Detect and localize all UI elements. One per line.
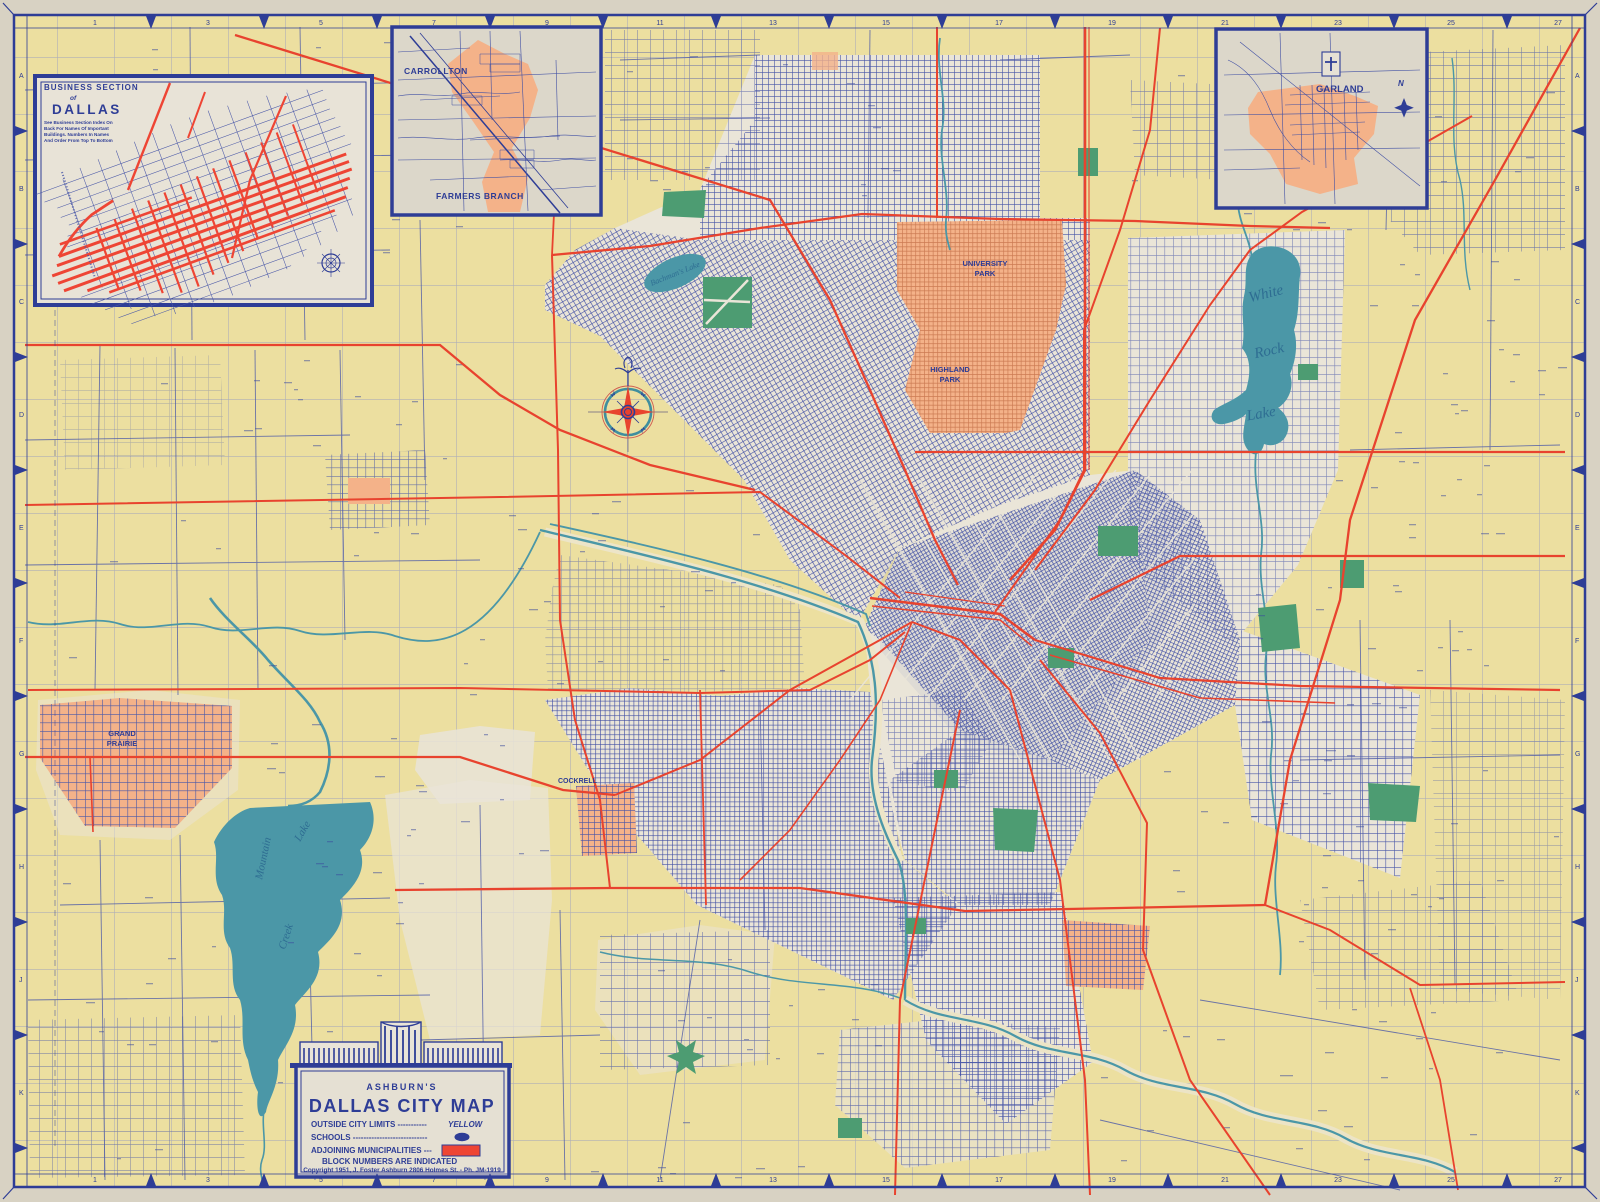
svg-text:23: 23	[1334, 20, 1342, 27]
svg-text:J: J	[1575, 977, 1579, 984]
svg-text:Back For Names Of Important: Back For Names Of Important	[44, 126, 109, 131]
svg-text:19: 19	[1108, 1177, 1116, 1184]
svg-text:BUSINESS SECTION: BUSINESS SECTION	[44, 83, 139, 92]
svg-text:C: C	[19, 299, 24, 306]
svg-text:D: D	[1575, 412, 1580, 419]
svg-text:27: 27	[1554, 20, 1562, 27]
svg-text:23: 23	[1334, 1177, 1342, 1184]
svg-text:GARLAND: GARLAND	[1316, 84, 1364, 95]
svg-text:YELLOW: YELLOW	[448, 1120, 484, 1129]
svg-text:3: 3	[206, 1177, 210, 1184]
svg-text:F: F	[19, 638, 23, 645]
svg-text:PARK: PARK	[975, 269, 996, 278]
svg-text:See Business Section Index On: See Business Section Index On	[44, 120, 113, 125]
svg-text:Buildings. Numbers In Names: Buildings. Numbers In Names	[44, 132, 110, 137]
svg-text:H: H	[1575, 864, 1580, 871]
svg-text:of: of	[70, 95, 77, 102]
svg-text:11: 11	[656, 1177, 663, 1184]
svg-text:B: B	[19, 186, 24, 193]
svg-text:ASHBURN'S: ASHBURN'S	[366, 1082, 437, 1092]
svg-text:H: H	[19, 864, 24, 871]
svg-text:N: N	[1398, 79, 1404, 88]
svg-text:FARMERS BRANCH: FARMERS BRANCH	[436, 191, 524, 201]
svg-text:ADJOINING MUNICIPALITIES ---: ADJOINING MUNICIPALITIES ---	[311, 1146, 432, 1155]
svg-text:E: E	[19, 525, 24, 532]
svg-text:D: D	[19, 412, 24, 419]
svg-text:K: K	[19, 1090, 24, 1097]
svg-text:Copyright 1951, J. Foster Ashb: Copyright 1951, J. Foster Ashburn 2806 H…	[303, 1167, 501, 1174]
svg-text:DALLAS: DALLAS	[52, 102, 122, 117]
svg-text:13: 13	[769, 20, 777, 27]
svg-text:J: J	[19, 977, 23, 984]
svg-text:5: 5	[319, 20, 323, 27]
svg-text:9: 9	[545, 20, 549, 27]
svg-text:E: E	[1575, 525, 1580, 532]
svg-text:1: 1	[93, 20, 97, 27]
svg-text:PRAIRIE: PRAIRIE	[107, 739, 137, 748]
svg-text:7: 7	[432, 20, 436, 27]
svg-text:A: A	[19, 73, 24, 80]
svg-text:5: 5	[319, 1177, 323, 1184]
svg-text:C: C	[1575, 299, 1580, 306]
svg-text:SCHOOLS ----------------------: SCHOOLS ----------------------------	[311, 1133, 428, 1142]
svg-text:F: F	[1575, 638, 1579, 645]
svg-text:G: G	[1575, 751, 1580, 758]
svg-text:G: G	[19, 751, 24, 758]
svg-text:HIGHLAND: HIGHLAND	[930, 365, 970, 374]
svg-text:15: 15	[882, 20, 890, 27]
svg-text:B: B	[1575, 186, 1580, 193]
svg-text:PARK: PARK	[940, 375, 961, 384]
svg-text:21: 21	[1221, 1177, 1229, 1184]
svg-text:OUTSIDE CITY LIMITS ----------: OUTSIDE CITY LIMITS -----------	[311, 1120, 427, 1129]
svg-text:3: 3	[206, 20, 210, 27]
svg-text:17: 17	[995, 1177, 1003, 1184]
svg-text:CARROLLTON: CARROLLTON	[404, 66, 468, 76]
svg-text:11: 11	[656, 20, 663, 27]
svg-text:21: 21	[1221, 20, 1229, 27]
svg-text:UNIVERSITY: UNIVERSITY	[962, 259, 1007, 268]
svg-text:GRAND: GRAND	[108, 729, 136, 738]
svg-text:27: 27	[1554, 1177, 1562, 1184]
svg-text:COCKRELL: COCKRELL	[558, 778, 598, 785]
svg-text:And Order From Top To Bottom: And Order From Top To Bottom	[44, 138, 113, 143]
svg-text:13: 13	[769, 1177, 777, 1184]
svg-text:15: 15	[882, 1177, 890, 1184]
svg-text:A: A	[1575, 73, 1580, 80]
svg-text:DALLAS CITY MAP: DALLAS CITY MAP	[309, 1096, 495, 1116]
svg-text:K: K	[1575, 1090, 1580, 1097]
svg-text:1: 1	[93, 1177, 97, 1184]
svg-text:7: 7	[432, 1177, 436, 1184]
svg-text:17: 17	[995, 20, 1003, 27]
svg-text:9: 9	[545, 1177, 549, 1184]
svg-text:25: 25	[1447, 1177, 1455, 1184]
svg-text:19: 19	[1108, 20, 1116, 27]
svg-text:25: 25	[1447, 20, 1455, 27]
svg-text:BLOCK NUMBERS ARE INDICATED: BLOCK NUMBERS ARE INDICATED	[322, 1157, 457, 1166]
